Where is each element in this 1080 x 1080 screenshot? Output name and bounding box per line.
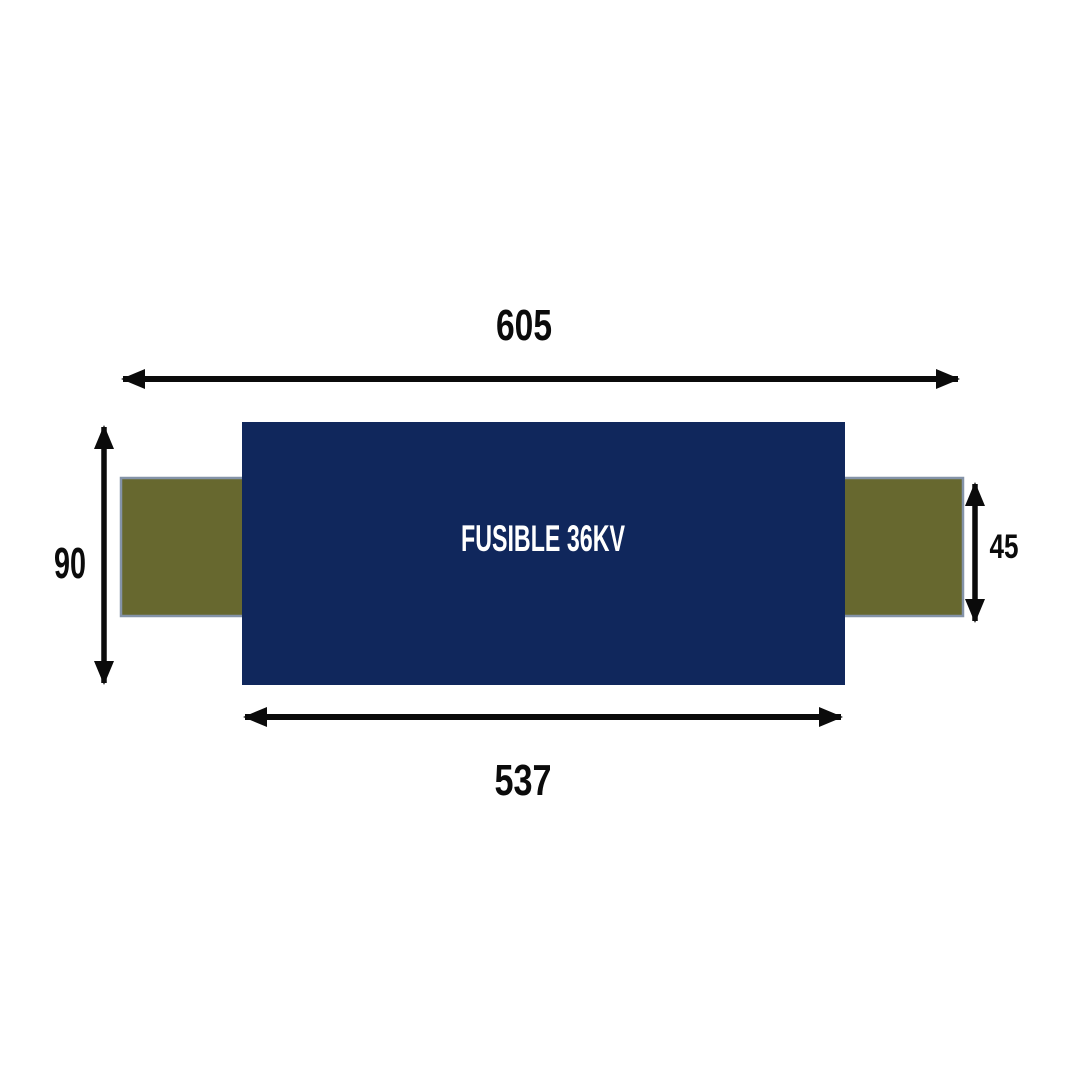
fuse-dimension-diagram: FUSIBLE 36KV 605 537 90 45: [0, 0, 1080, 1080]
right-terminal-cap: [837, 478, 963, 616]
diagram-canvas: FUSIBLE 36KV 605 537 90 45: [0, 0, 1080, 1080]
fuse-body-label: FUSIBLE 36KV: [461, 518, 625, 559]
cap-height-value: 45: [990, 528, 1019, 566]
body-height-value: 90: [54, 539, 86, 588]
overall-length-value: 605: [496, 301, 552, 350]
left-terminal-cap: [121, 478, 251, 616]
body-length-value: 537: [495, 756, 552, 805]
